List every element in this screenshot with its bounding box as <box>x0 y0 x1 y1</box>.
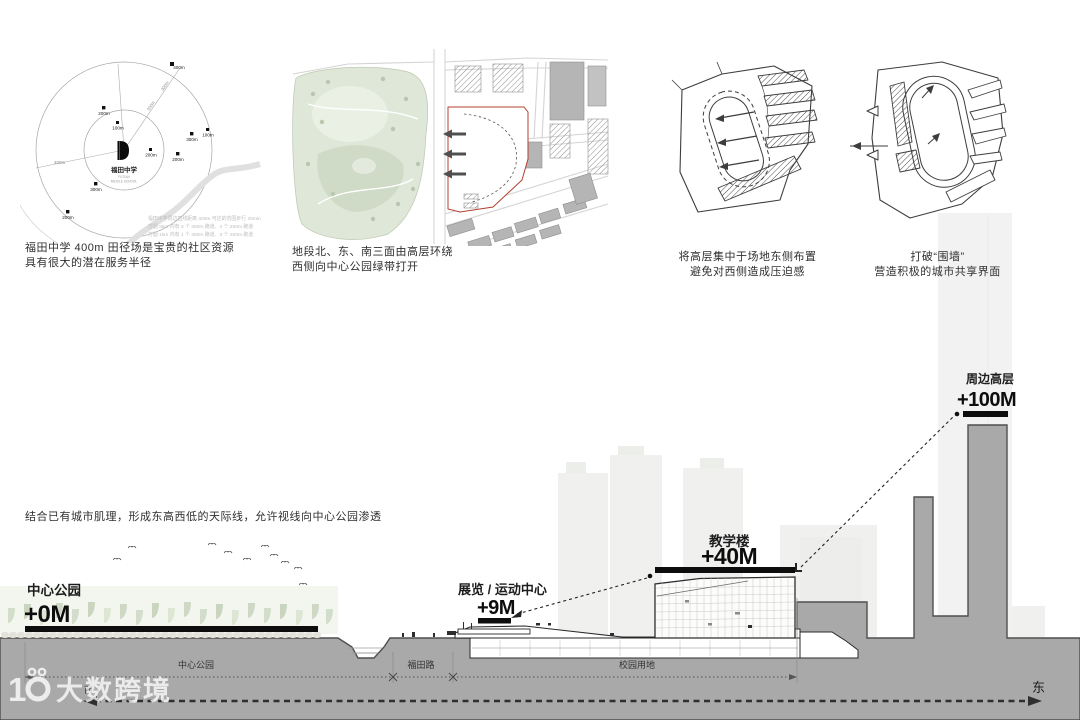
school-name: 福田中学 <box>110 165 138 174</box>
radius-rays <box>36 64 180 168</box>
svg-text:200m: 200m <box>145 153 157 158</box>
site-plan-map <box>288 44 610 246</box>
svg-text:200m: 200m <box>172 157 184 162</box>
siteplan-caption-line1: 地段北、东、南三面由高层环绕 <box>292 245 552 260</box>
radius-caption: 福田中学 400m 田径场是宝贵的社区资源 具有很大的潜在服务半径 <box>25 241 275 271</box>
exhibit-height: +9M <box>477 597 515 619</box>
site-boundary <box>448 107 528 212</box>
east-bars <box>946 80 1006 202</box>
dim-campus: 校园用地 <box>619 659 655 670</box>
sketch-east-caption-line2: 避免对西侧造成压迫感 <box>655 265 840 280</box>
radius-caption-line1: 福田中学 400m 田径场是宝贵的社区资源 <box>25 241 275 256</box>
datum-tower: 周边高层 +100M <box>957 371 1016 417</box>
svg-text:福田中学周边直线距离 400m 可达的范围步行 20min: 福田中学周边直线距离 400m 可达的范围步行 20min <box>148 215 261 222</box>
section-note: 结合已有城市肌理，形成东高西低的天际线，允许视线向中心公园渗透 <box>25 510 585 525</box>
svg-text:方圆 5km 内有 3 个 300m 跑道、4 个 250m: 方圆 5km 内有 3 个 300m 跑道、4 个 250m 跑道 <box>148 223 253 230</box>
park-label: 中心公园 <box>27 582 81 598</box>
teaching-building <box>655 577 795 638</box>
siteplan-caption-line2: 西侧向中心公园绿带打开 <box>292 260 552 275</box>
svg-text:200m: 200m <box>62 215 74 220</box>
svg-text:300m: 300m <box>186 137 198 142</box>
dim-park: 中心公园 <box>178 659 214 670</box>
svg-text:1: 1 <box>8 671 26 708</box>
siteplan-caption: 地段北、东、南三面由高层环绕 西侧向中心公园绿带打开 <box>292 245 552 275</box>
teach-height: +40M <box>701 543 757 569</box>
radius-note: 福田中学周边直线距离 400m 可达的范围步行 20min 方圆 5km 内有 … <box>148 215 261 238</box>
park-height: +0M <box>24 601 70 628</box>
central-park-area <box>293 67 428 239</box>
datum-exhibit: 展览 / 运动中心 +9M <box>458 582 547 624</box>
tower-height: +100M <box>957 389 1016 411</box>
highrise-bars <box>718 70 817 201</box>
east-label: 东 <box>1032 680 1045 695</box>
west-shared-bar <box>890 82 920 172</box>
sketch-east-caption: 将高层集中于场地东侧布置 避免对西侧造成压迫感 <box>655 250 840 280</box>
open-wall-caption: 打破“围墙” 营造积极的城市共享界面 <box>845 250 1030 280</box>
exhibit-label: 展览 / 运动中心 <box>458 582 547 597</box>
open-wall-caption-line2: 营造积极的城市共享界面 <box>845 265 1030 280</box>
svg-text:100m: 100m <box>202 133 214 138</box>
sketch-east-caption-line1: 将高层集中于场地东侧布置 <box>655 250 840 265</box>
svg-text:方圆 1km 内有 1 个 300m 跑道、3 个 200m: 方圆 1km 内有 1 个 300m 跑道、3 个 200m 跑道 <box>148 231 253 238</box>
open-wall-caption-line1: 打破“围墙” <box>845 250 1030 265</box>
massing-sketch-east <box>662 52 828 244</box>
svg-text:300m: 300m <box>90 187 102 192</box>
service-radius-diagram: 200m 300m 400m 福田中学 FUTIAN MIDDLE SCHOOL… <box>20 38 282 243</box>
tower-label: 周边高层 <box>966 371 1014 386</box>
radius-caption-line2: 具有很大的潜在服务半径 <box>25 256 275 271</box>
birds <box>113 543 307 585</box>
dim-road: 福田路 <box>407 659 434 670</box>
watermark-text: 大数跨境 <box>56 676 172 706</box>
school-center: 福田中学 FUTIAN MIDDLE SCHOOL <box>110 141 138 184</box>
svg-text:100m: 100m <box>112 126 124 131</box>
datum-teaching: 教学楼 +40M <box>655 533 795 573</box>
school-sub2: MIDDLE SCHOOL <box>111 180 138 184</box>
ray-tick-300: 300m <box>160 80 170 92</box>
analysis-board: 中心公园 +0M 展览 / 运动中心 +9M 教学楼 +40M 周边高层 +10… <box>0 0 1080 720</box>
school-sub1: FUTIAN <box>118 175 130 179</box>
west-axis-label: 400m <box>54 160 66 165</box>
svg-text:400m: 400m <box>173 65 185 70</box>
river <box>118 164 260 243</box>
open-wall-sketch <box>850 50 1020 246</box>
westward-arrows <box>715 112 759 170</box>
svg-text:200m: 200m <box>98 111 110 116</box>
